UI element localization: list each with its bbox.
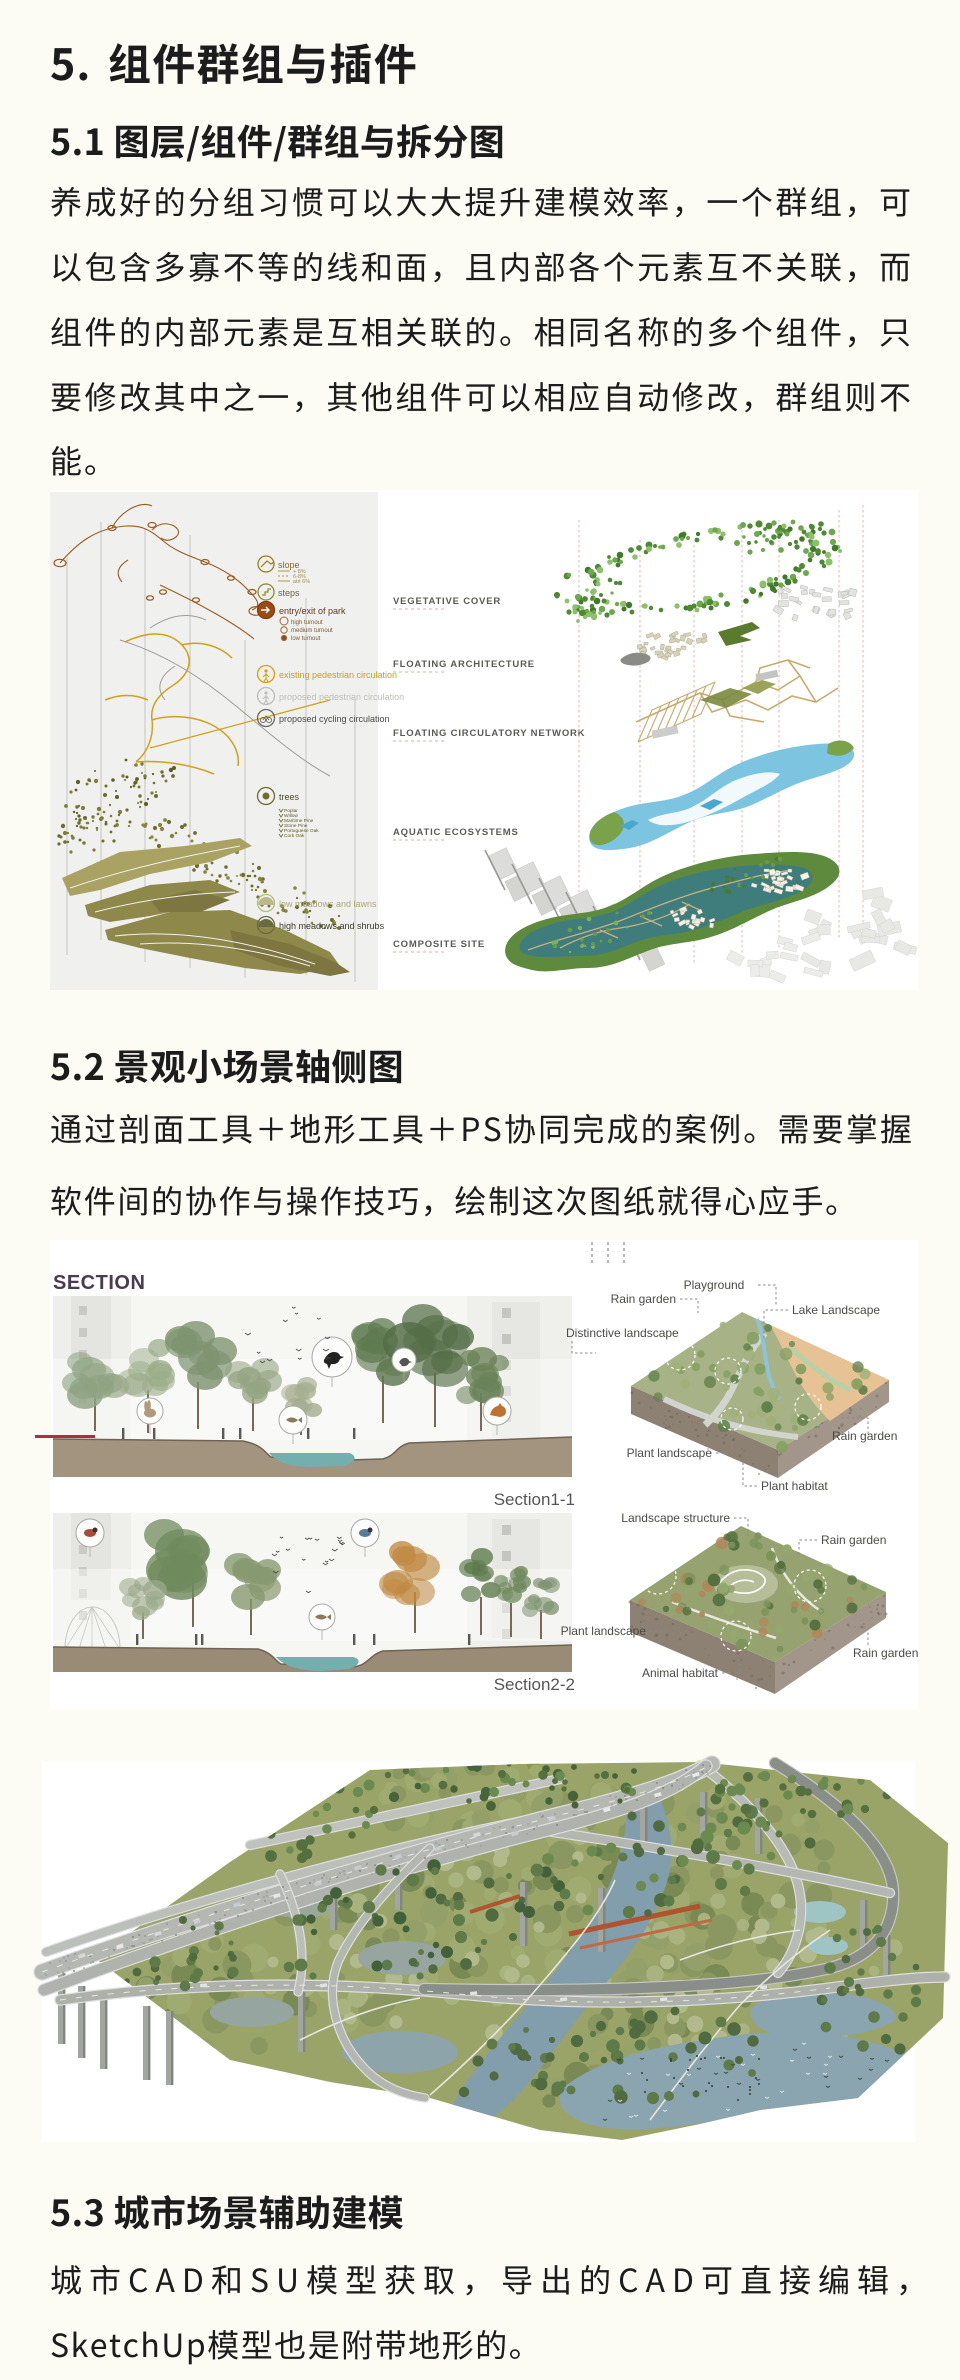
svg-text:Cork Oak: Cork Oak — [284, 833, 305, 839]
svg-text:Landscape structure: Landscape structure — [621, 1511, 730, 1525]
svg-text:Rain garden: Rain garden — [853, 1646, 918, 1660]
svg-text:Section2-2: Section2-2 — [494, 1675, 575, 1694]
svg-text:VEGETATIVE COVER: VEGETATIVE COVER — [393, 596, 501, 607]
svg-text:proposed pedestrian circulatio: proposed pedestrian circulation — [279, 692, 404, 702]
svg-text:low turnout: low turnout — [291, 636, 321, 642]
svg-text:AQUATIC ECOSYSTEMS: AQUATIC ECOSYSTEMS — [393, 827, 519, 838]
svg-text:COMPOSITE SITE: COMPOSITE SITE — [393, 939, 485, 950]
svg-text:Rain garden: Rain garden — [611, 1292, 676, 1306]
svg-text:high meadows and shrubs: high meadows and shrubs — [279, 921, 385, 931]
svg-text:Distinctive landscape: Distinctive landscape — [566, 1326, 679, 1340]
svg-text:Rain garden: Rain garden — [821, 1533, 886, 1547]
svg-text:FLOATING CIRCULATORY NETWORK: FLOATING CIRCULATORY NETWORK — [393, 728, 585, 739]
svg-text:Lake Landscape: Lake Landscape — [792, 1303, 880, 1317]
svg-text:high turnout: high turnout — [291, 620, 323, 626]
svg-text:steps: steps — [278, 588, 300, 598]
svg-text:medium turnout: medium turnout — [291, 628, 333, 634]
svg-text:Plant landscape: Plant landscape — [561, 1624, 647, 1638]
svg-text:Plant habitat: Plant habitat — [761, 1479, 828, 1493]
svg-text:FLOATING ARCHITECTURE: FLOATING ARCHITECTURE — [393, 659, 535, 670]
svg-text:Rain garden: Rain garden — [832, 1429, 897, 1443]
svg-text:proposed cycling circulation: proposed cycling circulation — [279, 714, 390, 724]
svg-text:entry/exit of park: entry/exit of park — [279, 606, 346, 616]
svg-text:Playground: Playground — [684, 1278, 745, 1292]
svg-text:até 6%: até 6% — [293, 579, 310, 585]
svg-text:existing pedestrian circulatio: existing pedestrian circulation — [279, 670, 397, 680]
svg-text:Plant landscape: Plant landscape — [627, 1446, 713, 1460]
svg-text:trees: trees — [279, 792, 300, 802]
svg-text:low meadows and lawns: low meadows and lawns — [279, 899, 377, 909]
svg-text:Section1-1: Section1-1 — [494, 1490, 575, 1509]
svg-text:SECTION: SECTION — [53, 1272, 145, 1294]
svg-text:Animal habitat: Animal habitat — [642, 1666, 719, 1680]
